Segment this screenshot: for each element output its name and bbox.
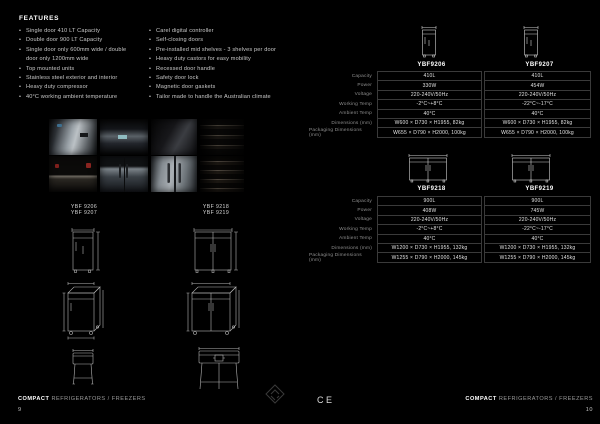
model-header: YBF9207	[486, 62, 593, 68]
model-header: YBF9206	[379, 62, 484, 68]
model-label-left: YBF 9206 YBF 9207	[60, 204, 108, 216]
door-handle	[178, 163, 181, 183]
feature-item: Self-closing doors	[149, 36, 277, 45]
footer-left: COMPACT REFRIGERATORS / FREEZERS 9	[18, 396, 146, 413]
feature-item: Heavy duty castors for easy mobility	[149, 55, 277, 64]
page-number: 10	[465, 407, 593, 413]
feature-item: Tailor made to handle the Australian cli…	[149, 93, 277, 102]
model-header: YBF9219	[486, 186, 593, 192]
feature-item: Recessed door handle	[149, 65, 277, 74]
footer-right: COMPACT REFRIGERATORS / FREEZERS 10	[465, 396, 593, 413]
door-seam	[124, 156, 125, 192]
single-door-stand-drawing	[73, 349, 94, 384]
door-seam	[174, 156, 176, 192]
feature-item: Double door 900 LT Capacity	[19, 36, 131, 45]
double-door-axon-drawing	[187, 282, 240, 335]
door-handle	[167, 163, 170, 183]
features-list-left: Single door 410 LT Capacity Double door …	[19, 27, 131, 102]
feature-item: Magnetic door gaskets	[149, 83, 277, 92]
door-handle	[126, 164, 128, 178]
product-photo-grid	[49, 119, 244, 192]
feature-item: Top mounted units	[19, 65, 131, 74]
page-number: 9	[18, 407, 146, 413]
detail-accent	[55, 164, 59, 168]
brand-diamond-logo-icon	[264, 383, 286, 405]
detail-accent	[86, 163, 91, 168]
feature-item: Stainless steel exterior and interior	[19, 74, 131, 83]
product-photo-door-detail	[151, 119, 197, 155]
product-photo-shelves-top	[200, 119, 244, 155]
spec-value-cell: W655 × D790 × H2000, 100kg	[377, 127, 482, 137]
model-label-right: YBF 9218 YBF 9219	[192, 204, 240, 216]
spec-row: Packaging Dimensions (mm)W1255 × D790 × …	[309, 252, 593, 262]
feature-item: Safety door lock	[149, 74, 277, 83]
spec-table-2: Capacity900L900L Power408W745W Voltage22…	[309, 196, 593, 263]
control-display	[80, 133, 88, 137]
features-section: FEATURES Single door 410 LT Capacity Dou…	[19, 15, 277, 102]
technical-dimension-drawings	[40, 226, 250, 392]
spec-value-cell: W655 × D790 × H2000, 100kg	[484, 127, 591, 137]
feature-item: Pre-installed mid shelves - 3 shelves pe…	[149, 46, 277, 55]
single-door-unit-icon	[419, 24, 439, 58]
feature-item: Single door 410 LT Capacity	[19, 27, 131, 36]
spec-row: Packaging Dimensions (mm)W655 × D790 × H…	[309, 127, 593, 137]
brand-badge	[57, 124, 62, 127]
spec-value-cell: W1255 × D790 × H2000, 145kg	[484, 252, 591, 262]
product-photo-controller	[100, 119, 148, 155]
door-handle	[119, 164, 121, 178]
product-photo-fridge-front	[49, 119, 97, 155]
product-photo-interior-shelves	[200, 156, 244, 192]
features-list-right: Carel digital controller Self-closing do…	[149, 27, 277, 102]
single-door-front-drawing	[72, 228, 100, 273]
product-photo-double-doors	[151, 156, 197, 192]
ce-mark: CE	[317, 395, 335, 405]
digital-controller-display	[118, 135, 127, 139]
feature-item: Single door only 600mm wide / double doo…	[19, 46, 131, 65]
spec-table-1: Capacity410L410L Power330W454W Voltage22…	[309, 71, 593, 138]
spec-value-cell: W1255 × D790 × H2000, 145kg	[377, 252, 482, 262]
spec-table-1-model-headers: YBF9206 YBF9207	[379, 62, 593, 68]
double-door-front-drawing	[194, 228, 238, 273]
single-door-unit-icon	[521, 24, 541, 58]
double-door-unit-icon	[509, 152, 553, 184]
feature-item: 40°C working ambient temperature	[19, 93, 131, 102]
product-photo-double-door-top	[100, 156, 148, 192]
model-header: YBF9218	[379, 186, 484, 192]
single-door-axon-drawing	[63, 282, 104, 340]
feature-item: Heavy duty compressor	[19, 83, 131, 92]
product-photo-interior-shelf	[49, 156, 97, 192]
feature-item: Carel digital controller	[149, 27, 277, 36]
spec-table-2-model-headers: YBF9218 YBF9219	[379, 186, 593, 192]
catalog-spread: FEATURES Single door 410 LT Capacity Dou…	[0, 0, 600, 424]
double-door-stand-drawing	[199, 347, 239, 389]
footer-title: COMPACT REFRIGERATORS / FREEZERS	[465, 396, 593, 402]
footer-title: COMPACT REFRIGERATORS / FREEZERS	[18, 396, 146, 402]
double-door-unit-icon	[406, 152, 450, 184]
features-title: FEATURES	[19, 15, 277, 22]
